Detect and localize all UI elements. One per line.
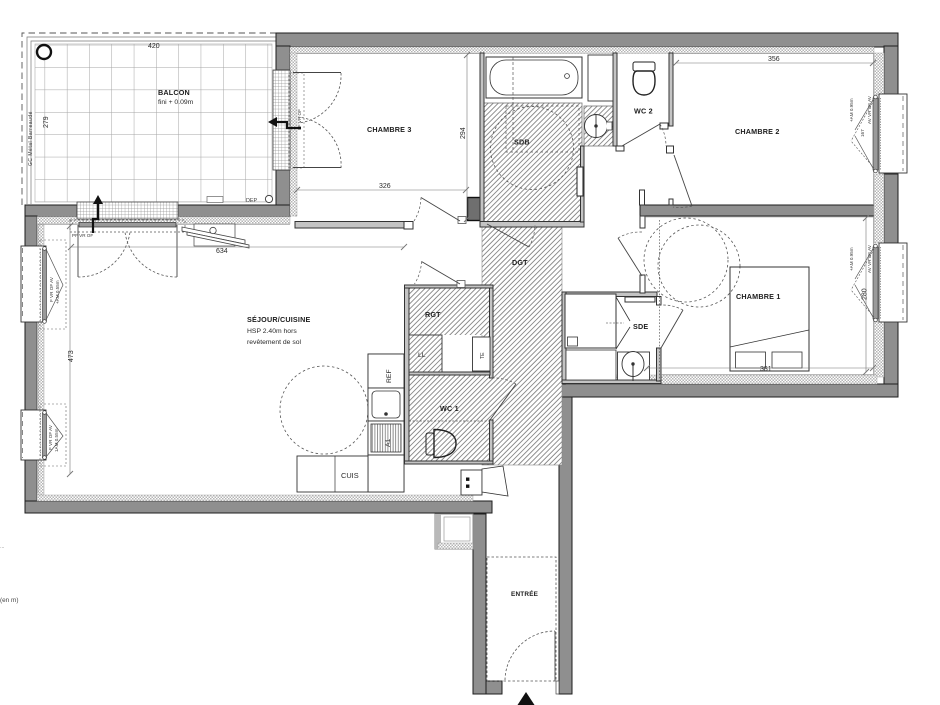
svg-text:CHAMBRE 2: CHAMBRE 2: [735, 127, 780, 136]
svg-text:634: 634: [216, 248, 228, 255]
svg-text:LL: LL: [418, 352, 426, 359]
svg-text:420: 420: [148, 43, 160, 50]
svg-text:CUIS: CUIS: [341, 471, 359, 480]
svg-text:1AM 0.55m: 1AM 0.55m: [54, 428, 59, 452]
svg-text:A1: A1: [385, 438, 392, 447]
svg-text:280: 280: [862, 288, 869, 300]
svg-text:ENTRÉE: ENTRÉE: [511, 589, 539, 598]
svg-text:SDE: SDE: [633, 322, 648, 331]
svg-text:GC Métal Barreaudé: GC Métal Barreaudé: [28, 111, 34, 166]
svg-text:SDB: SDB: [514, 138, 530, 147]
svg-text:CHAMBRE 3: CHAMBRE 3: [367, 125, 412, 134]
svg-text:167: 167: [860, 129, 865, 137]
svg-text:PF VR OF: PF VR OF: [72, 233, 93, 238]
svg-text:F VR OF AV: F VR OF AV: [48, 424, 53, 450]
svg-text:REF: REF: [386, 369, 393, 383]
svg-text:356: 356: [768, 56, 780, 63]
svg-text:AV VR OF AV: AV VR OF AV: [867, 95, 872, 124]
svg-text:WC 2: WC 2: [634, 107, 653, 116]
svg-text:+AM 0.95m: +AM 0.95m: [849, 247, 854, 271]
svg-text:F VR OF AV: F VR OF AV: [49, 276, 54, 302]
svg-text:RGT: RGT: [425, 310, 441, 319]
svg-text:+AM 0.55m: +AM 0.55m: [55, 280, 60, 304]
svg-text:DGT: DGT: [512, 258, 528, 267]
svg-text:473: 473: [68, 350, 75, 362]
svg-text:WC 1: WC 1: [440, 404, 459, 413]
svg-text:AV VR OF AV: AV VR OF AV: [867, 244, 872, 273]
svg-text:HSP 2.40m hors: HSP 2.40m hors: [247, 328, 297, 335]
svg-text:279: 279: [43, 116, 50, 128]
svg-text:294: 294: [460, 127, 467, 139]
svg-text:(en m): (en m): [0, 597, 18, 604]
svg-text:SÉJOUR/CUISINE: SÉJOUR/CUISINE: [247, 315, 311, 324]
svg-text:fini + 0.09m: fini + 0.09m: [158, 99, 194, 106]
svg-text:BALCON: BALCON: [158, 88, 190, 97]
svg-text:…: …: [0, 544, 5, 549]
svg-text:FF VR OF: FF VR OF: [297, 109, 302, 130]
svg-text:326: 326: [379, 183, 391, 190]
svg-text:TE: TE: [480, 352, 486, 359]
svg-text:381: 381: [760, 366, 772, 373]
svg-text:DEP: DEP: [246, 198, 257, 204]
svg-text:revêtement de sol: revêtement de sol: [247, 339, 302, 346]
svg-text:+AM 0.95m: +AM 0.95m: [849, 98, 854, 122]
svg-text:CHAMBRE 1: CHAMBRE 1: [736, 292, 781, 301]
